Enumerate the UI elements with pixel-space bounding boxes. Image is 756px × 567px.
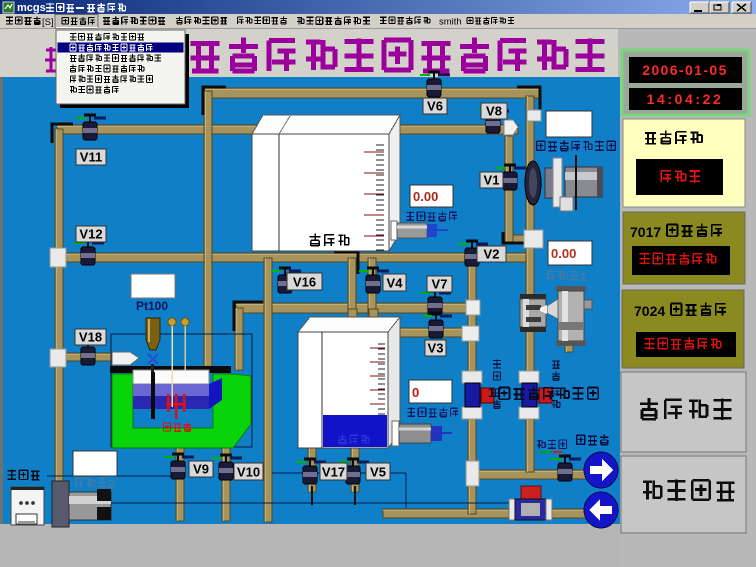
svg-text:V5: V5 <box>370 465 386 480</box>
svg-text:7024: 7024 <box>634 303 665 319</box>
svg-text:V12: V12 <box>79 227 102 242</box>
svg-text:0.00: 0.00 <box>551 246 576 261</box>
svg-text:V8: V8 <box>486 104 502 119</box>
svg-text:2: 2 <box>108 477 115 491</box>
svg-text:1: 1 <box>580 270 587 284</box>
svg-text:V11: V11 <box>80 150 102 165</box>
svg-text:1: 1 <box>488 385 495 400</box>
svg-text:7017: 7017 <box>630 224 661 240</box>
svg-text:V18: V18 <box>79 330 102 345</box>
svg-text:V6: V6 <box>427 99 443 114</box>
svg-text:14:04:22: 14:04:22 <box>647 91 724 107</box>
svg-text:0: 0 <box>412 385 419 400</box>
svg-text:V2: V2 <box>484 247 500 262</box>
svg-text:0.00: 0.00 <box>413 189 438 204</box>
svg-text:V16: V16 <box>293 275 316 290</box>
svg-text:V17: V17 <box>322 465 345 480</box>
svg-text:V3: V3 <box>428 341 444 356</box>
svg-text:2006-01-05: 2006-01-05 <box>642 62 728 78</box>
svg-text:V10: V10 <box>237 465 260 480</box>
svg-text:V4: V4 <box>387 276 404 291</box>
svg-text:[S]: [S] <box>42 17 54 28</box>
svg-text:Pt100: Pt100 <box>136 299 168 313</box>
svg-text:smith: smith <box>439 17 462 28</box>
svg-text:V7: V7 <box>432 277 448 292</box>
svg-text:V1: V1 <box>484 173 500 188</box>
svg-text:V9: V9 <box>193 462 209 477</box>
svg-text:mcgs: mcgs <box>17 2 46 14</box>
